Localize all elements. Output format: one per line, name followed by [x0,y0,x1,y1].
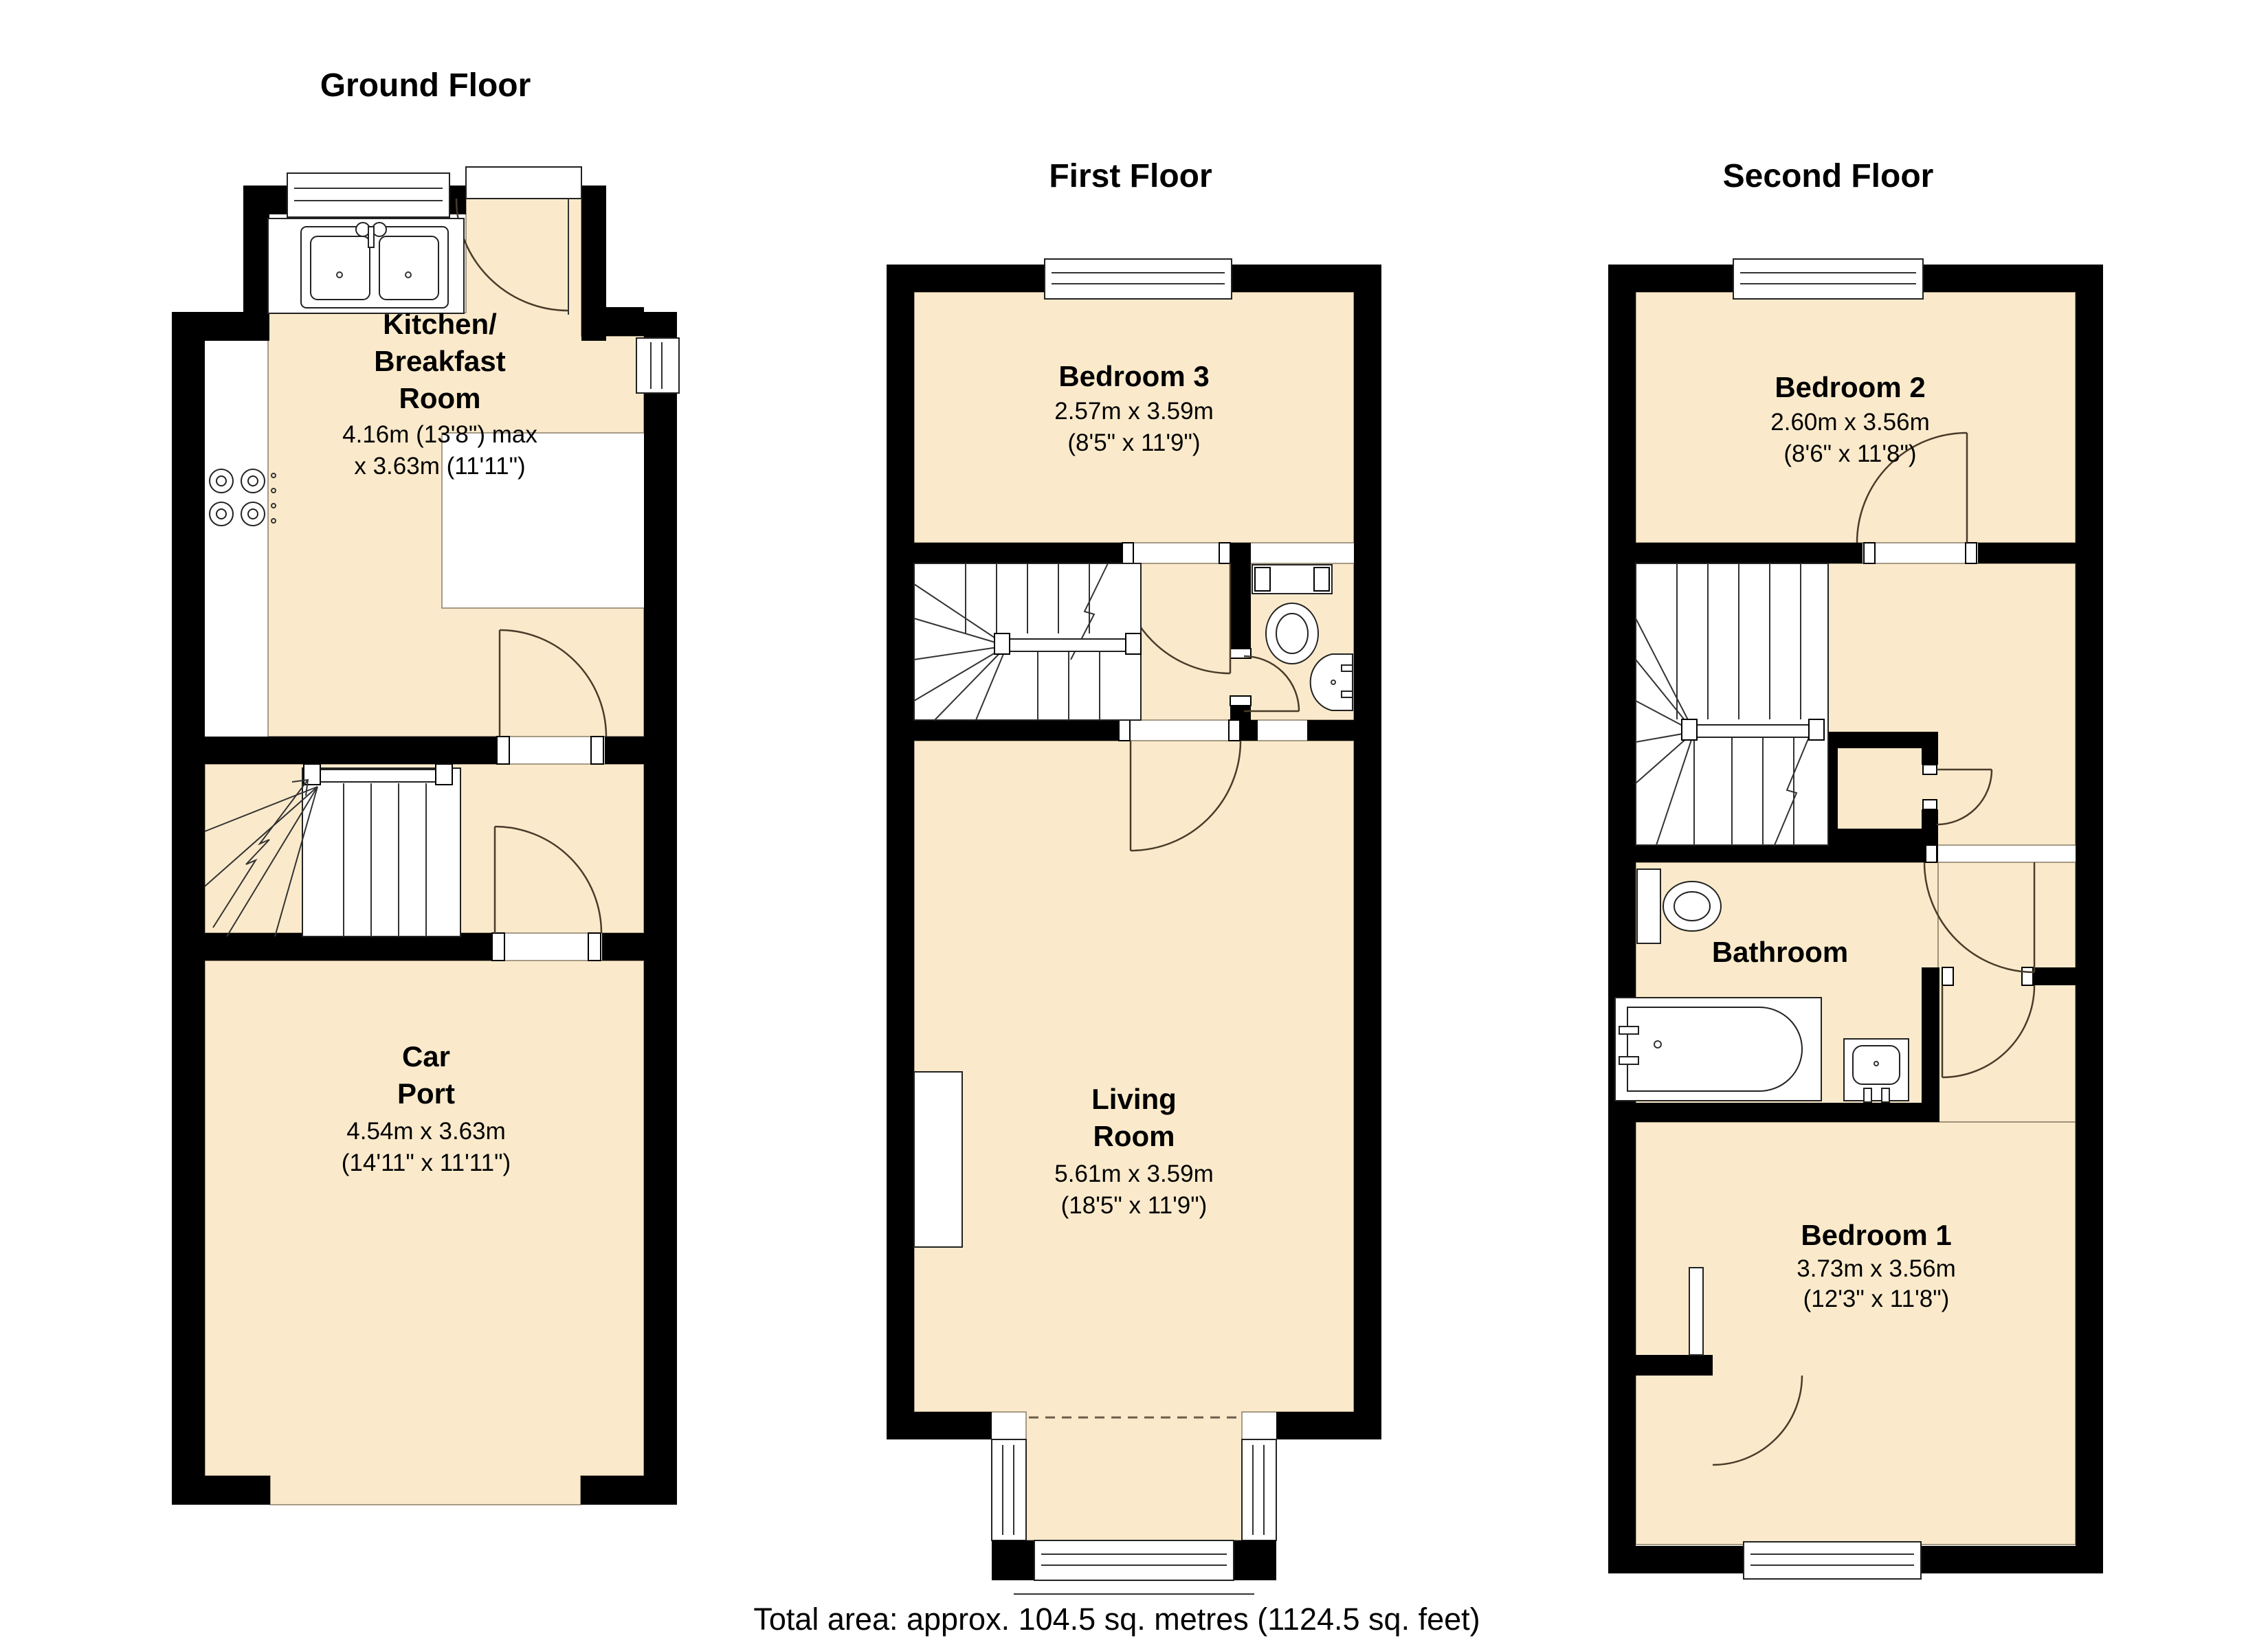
svg-text:(8'5" x 11'9"): (8'5" x 11'9") [1067,429,1200,456]
svg-text:Bedroom 1: Bedroom 1 [1801,1219,1951,1251]
svg-text:Breakfast: Breakfast [374,345,505,377]
room-label-bedroom-2: Bedroom 2 2.60m x 3.56m (8'6" x 11'8") [1770,371,1930,467]
chimney-breast [914,1072,962,1247]
svg-text:4.16m (13'8") max: 4.16m (13'8") max [342,421,537,448]
floor-plan-ground: Ground Floor [172,67,679,1505]
svg-text:2.57m x 3.59m: 2.57m x 3.59m [1054,398,1214,425]
bedroom-2-window-icon [1733,259,1923,299]
staircase-icon [1636,563,1828,845]
room-label-bedroom-3: Bedroom 3 2.57m x 3.59m (8'5" x 11'9") [1054,360,1214,456]
bedroom-3-window-icon [1045,259,1232,299]
svg-text:4.54m x 3.63m: 4.54m x 3.63m [346,1118,506,1145]
svg-text:(12'3" x 11'8"): (12'3" x 11'8") [1803,1286,1950,1312]
svg-text:(18'5" x 11'9"): (18'5" x 11'9") [1061,1192,1208,1219]
svg-text:x 3.63m (11'11"): x 3.63m (11'11") [354,453,525,480]
floorplan-page: Ground Floor [0,0,2268,1649]
svg-text:5.61m x 3.59m: 5.61m x 3.59m [1054,1160,1214,1187]
svg-text:Living: Living [1091,1083,1177,1115]
staircase-icon [914,563,1141,720]
svg-text:(14'11" x 11'11"): (14'11" x 11'11") [342,1149,511,1176]
side-window-icon [636,338,679,393]
kitchen-sink-icon [268,218,464,313]
svg-text:Bathroom: Bathroom [1712,936,1848,968]
svg-text:Kitchen/: Kitchen/ [383,308,497,340]
floor-plan-first: First Floor [887,158,1381,1594]
room-label-bathroom: Bathroom [1712,936,1848,968]
floor-title: Ground Floor [320,67,531,104]
svg-text:Car: Car [402,1040,450,1073]
svg-text:Bedroom 3: Bedroom 3 [1058,360,1209,392]
svg-text:3.73m x 3.56m: 3.73m x 3.56m [1797,1255,1956,1282]
hob-icon [210,469,276,526]
total-area-text: Total area: approx. 104.5 sq. metres (11… [753,1602,1480,1637]
floor-title: First Floor [1049,158,1212,194]
svg-text:Room: Room [1093,1120,1175,1152]
bathtub-icon [1615,998,1821,1101]
room-label-bedroom-1: Bedroom 1 3.73m x 3.56m (12'3" x 11'8") [1797,1219,1956,1312]
svg-text:Bedroom 2: Bedroom 2 [1775,371,1925,403]
floor-plan-second: Second Floor [1608,158,2103,1579]
floor-title: Second Floor [1723,158,1934,194]
svg-text:Port: Port [397,1077,455,1110]
hall-area [1938,862,2076,1122]
kitchen-window-icon [287,173,449,217]
svg-text:2.60m x 3.56m: 2.60m x 3.56m [1770,409,1930,436]
svg-text:Room: Room [399,382,481,414]
bedroom-1-window-icon [1744,1542,1921,1579]
svg-text:(8'6" x 11'8"): (8'6" x 11'8") [1783,440,1916,467]
basin-icon [1844,1039,1909,1102]
